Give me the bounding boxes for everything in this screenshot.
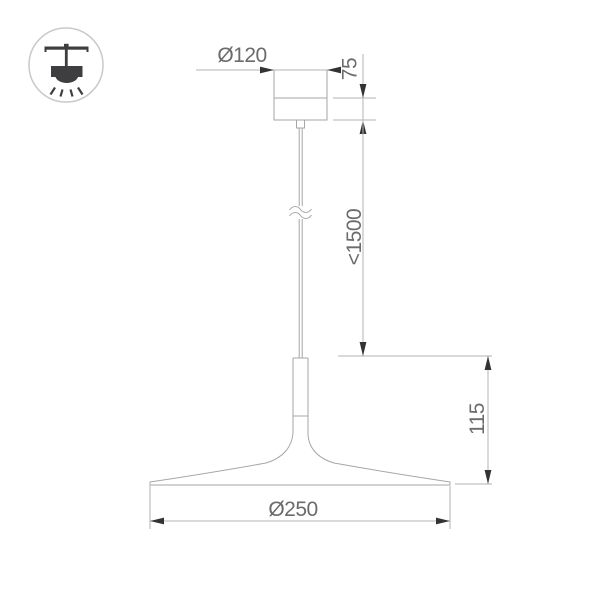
dim-shade-height: 115 (455, 356, 492, 484)
dim-arrow (436, 518, 450, 525)
dim-canopy-diameter: Ø120 (196, 44, 341, 73)
canopy-height-label: 75 (339, 58, 362, 80)
dim-suspension-length: <1500 (338, 120, 492, 356)
shade-outline (150, 433, 450, 485)
shade-diameter-label: Ø250 (268, 498, 317, 521)
pendant-lamp-icon (29, 28, 103, 102)
pendant-lamp-dimension-diagram: Ø120 75 <1500 115 Ø250 (0, 0, 600, 600)
dim-arrow (150, 518, 164, 525)
dim-arrow (260, 67, 274, 74)
dim-arrow (485, 470, 492, 484)
cable-break-symbol (290, 207, 312, 219)
icon-stem (65, 50, 68, 67)
drawing-canvas: Ø120 75 <1500 115 Ø250 (0, 0, 600, 600)
stem-drawing (293, 358, 308, 433)
shade-drawing (150, 433, 450, 485)
dim-arrow (360, 342, 367, 356)
dim-canopy-height: 75 (333, 54, 376, 134)
canopy-diameter-label: Ø120 (217, 44, 266, 67)
shade-height-label: 115 (466, 403, 489, 435)
suspension-length-label: <1500 (343, 209, 366, 265)
cable-drawing (290, 128, 312, 358)
dim-arrow (485, 356, 492, 370)
canopy-body (274, 70, 327, 120)
dim-arrow (360, 84, 367, 98)
dim-shade-diameter: Ø250 (150, 483, 450, 529)
cable-gland (297, 120, 305, 128)
canopy-drawing (274, 70, 327, 128)
